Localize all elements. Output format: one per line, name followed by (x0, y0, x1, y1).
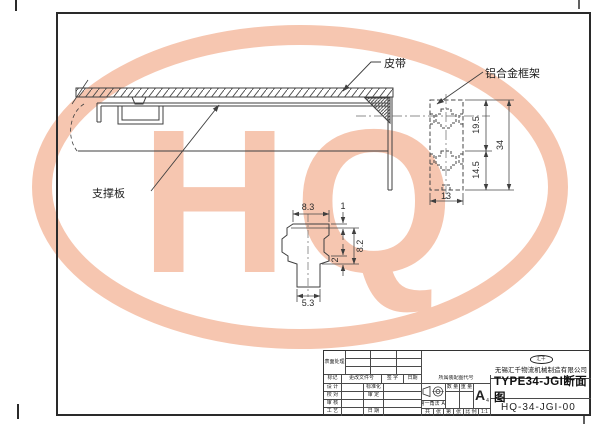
empty-cell (397, 367, 422, 375)
empty-cell (397, 351, 422, 359)
watermark-text: HQ (140, 87, 460, 316)
qty-value (446, 392, 460, 409)
weight-header: 重 量 (460, 384, 474, 392)
revision-letter: A (475, 388, 485, 403)
empty-cell (384, 392, 422, 400)
row-date-label: 日 期 (364, 408, 384, 416)
scale-label: 比 例 (464, 409, 479, 416)
empty-cell (384, 408, 422, 416)
dim-13: 13 (441, 191, 451, 201)
belt-label: 皮带 (384, 57, 406, 70)
drawing-title: TYPE34-JGI断面图 (491, 379, 591, 399)
header-date: 日期 (404, 375, 422, 384)
row-approve-label: 审 定 (364, 392, 384, 400)
empty-cell (371, 351, 398, 359)
header-sign: 签 字 (382, 375, 404, 384)
qty-header: 数 量 (446, 384, 460, 392)
support-plate-label: 支撑板 (92, 186, 125, 200)
sheet-no-unit: 张 (454, 409, 464, 416)
belt-strip (76, 88, 393, 97)
empty-cell (371, 359, 398, 367)
row-check-label: 校 对 (324, 392, 342, 400)
dim-2: 2 (330, 257, 340, 262)
row-standard-label: 标准化 (364, 384, 384, 392)
first-angle-projection-icon (422, 384, 444, 399)
scale-value: 1:1 (479, 409, 491, 416)
row-review-label: 审 核 (324, 400, 342, 408)
weight-value (460, 392, 474, 409)
empty-cell (342, 400, 364, 408)
revision-cell: A 4 (474, 384, 491, 409)
revision-sub: 4 (486, 399, 489, 405)
sheets-total-unit: 张 (434, 409, 444, 416)
belongs-cell: 所属装配图代号 (422, 375, 491, 384)
dim-8-2: 8.2 (355, 240, 365, 253)
row-design-label: 设 计 (324, 384, 342, 392)
revision-grid (346, 351, 422, 375)
empty-cell (342, 408, 364, 416)
title-block: 表面处理 标记 更改文件号 签 字 日期 设 计 标准化 校 对 审 定 审 核… (323, 350, 590, 415)
surface-treatment-cell: 表面处理 (324, 351, 346, 375)
empty-cell (342, 392, 364, 400)
empty-cell (342, 384, 364, 392)
empty-cell (346, 351, 371, 359)
empty-cell (384, 400, 422, 408)
hq-watermark: HQ (42, 35, 558, 339)
row-process-label: 工 艺 (324, 408, 342, 416)
empty-cell (371, 367, 398, 375)
dim-1: 1 (340, 201, 345, 211)
empty-cell (364, 400, 384, 408)
dim-14-5: 14.5 (471, 161, 481, 179)
drawing-number: HQ-34-JGI-00 (491, 399, 591, 416)
projection-method-cell: 第一角法 A4 (422, 401, 446, 409)
empty-cell (397, 359, 422, 367)
dim-19-5: 19.5 (471, 116, 481, 134)
company-logo: 汇千 (530, 355, 553, 364)
dim-34: 34 (495, 140, 505, 150)
projection-method-label: 第一角法 (422, 402, 439, 408)
empty-cell (346, 367, 371, 375)
header-change-doc: 更改文件号 (342, 375, 382, 384)
alu-frame-label: 铝合金框架 (485, 66, 540, 80)
drawing-sheet: HQ (0, 0, 600, 424)
dim-8-3: 8.3 (302, 202, 315, 212)
empty-cell (384, 384, 422, 392)
empty-cell (346, 359, 371, 367)
sheet-no-label: 第 (444, 409, 454, 416)
projection-symbol-cell (422, 384, 446, 401)
header-mark: 标记 (324, 375, 342, 384)
dim-5-3: 5.3 (302, 298, 315, 308)
sheets-total-label: 共 (422, 409, 434, 416)
